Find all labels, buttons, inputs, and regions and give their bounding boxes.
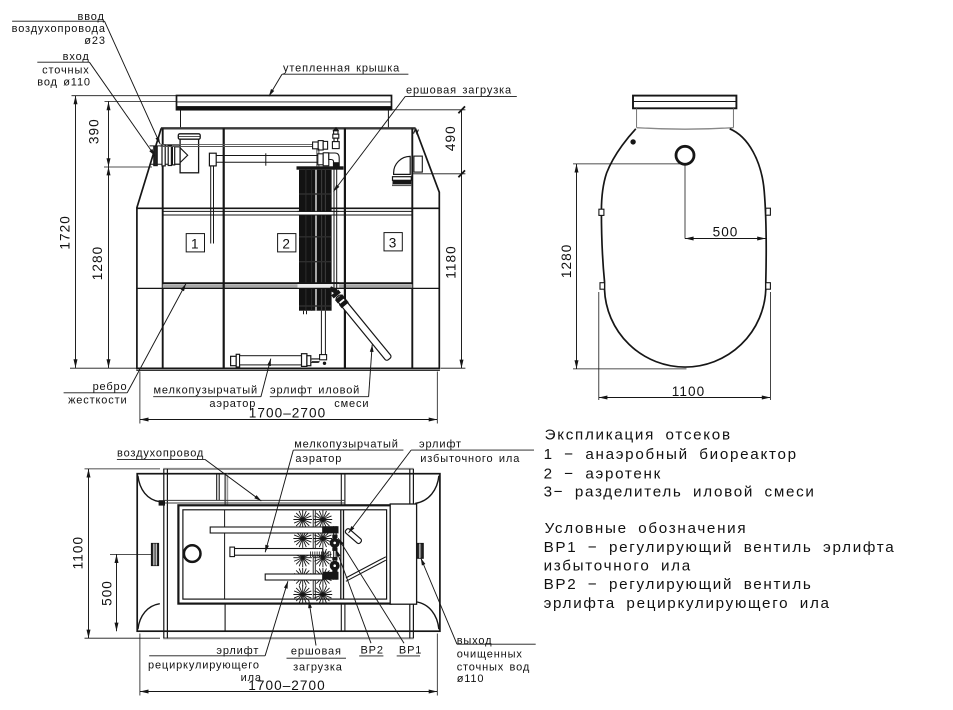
svg-text:490: 490 [443, 125, 458, 151]
svg-text:смеси: смеси [334, 398, 369, 410]
svg-text:воздухопровода: воздухопровода [12, 23, 106, 35]
svg-text:эрлифт: эрлифт [419, 439, 462, 451]
svg-text:эрлифта рециркулирующего ила: эрлифта рециркулирующего ила [544, 595, 831, 612]
svg-text:2: 2 [282, 236, 291, 251]
svg-text:аэратор: аэратор [295, 453, 342, 465]
svg-text:избыточного ила: избыточного ила [420, 453, 520, 465]
svg-text:500: 500 [713, 225, 739, 240]
svg-text:воздухопровод: воздухопровод [117, 448, 204, 460]
svg-text:1100: 1100 [672, 384, 705, 399]
svg-text:ила: ила [241, 672, 262, 684]
svg-text:Экспликация отсеков: Экспликация отсеков [545, 426, 732, 443]
svg-text:ВР2: ВР2 [361, 645, 384, 657]
svg-text:ВР2 − регулирующий вентиль: ВР2 − регулирующий вентиль [544, 576, 813, 593]
svg-text:ребро: ребро [93, 381, 128, 393]
svg-text:1180: 1180 [443, 245, 458, 278]
svg-text:утепленная крышка: утепленная крышка [283, 62, 400, 74]
svg-text:сточных: сточных [42, 65, 89, 77]
svg-text:ВР1 − регулирующий вентиль: ВР1 − регулирующий вентиль эрлифта [544, 539, 896, 556]
svg-text:3− разделитель иловой смеси: 3− разделитель иловой смеси [544, 484, 816, 501]
svg-text:1 − анаэробный биореактор: 1 − анаэробный биореактор [544, 446, 798, 463]
svg-text:ершовая: ершовая [291, 646, 342, 658]
svg-text:1100: 1100 [71, 536, 86, 569]
svg-text:мелкопузырчатый: мелкопузырчатый [154, 385, 259, 397]
svg-text:жесткости: жесткости [68, 394, 127, 406]
svg-text:аэратор: аэратор [209, 398, 256, 410]
svg-text:1: 1 [191, 236, 200, 251]
svg-text:вод ø110: вод ø110 [37, 76, 91, 88]
svg-text:рециркулирующего: рециркулирующего [148, 659, 260, 671]
svg-text:500: 500 [99, 580, 114, 606]
svg-text:ø23: ø23 [84, 35, 106, 47]
svg-text:очищенных: очищенных [457, 648, 523, 660]
svg-text:390: 390 [87, 118, 102, 144]
svg-text:выход: выход [457, 635, 493, 647]
svg-text:ершовая загрузка: ершовая загрузка [406, 84, 512, 96]
svg-text:1280: 1280 [90, 246, 105, 280]
svg-text:1720: 1720 [58, 215, 73, 249]
svg-text:вход: вход [63, 51, 90, 63]
svg-text:3: 3 [389, 235, 398, 250]
svg-text:ø110: ø110 [457, 673, 485, 685]
svg-text:загрузка: загрузка [293, 662, 343, 674]
svg-text:1280: 1280 [559, 244, 574, 278]
svg-text:избыточного ила: избыточного ила [544, 558, 692, 575]
svg-text:сточных вод: сточных вод [457, 661, 530, 673]
svg-text:мелкопузырчатый: мелкопузырчатый [294, 439, 399, 451]
svg-text:ВР1: ВР1 [399, 645, 422, 657]
svg-text:1700–2700: 1700–2700 [249, 405, 327, 420]
svg-text:2 − аэротенк: 2 − аэротенк [544, 465, 662, 482]
svg-text:Условные обозначения: Условные обозначения [545, 520, 748, 537]
svg-text:эрлифт иловой: эрлифт иловой [270, 385, 360, 397]
